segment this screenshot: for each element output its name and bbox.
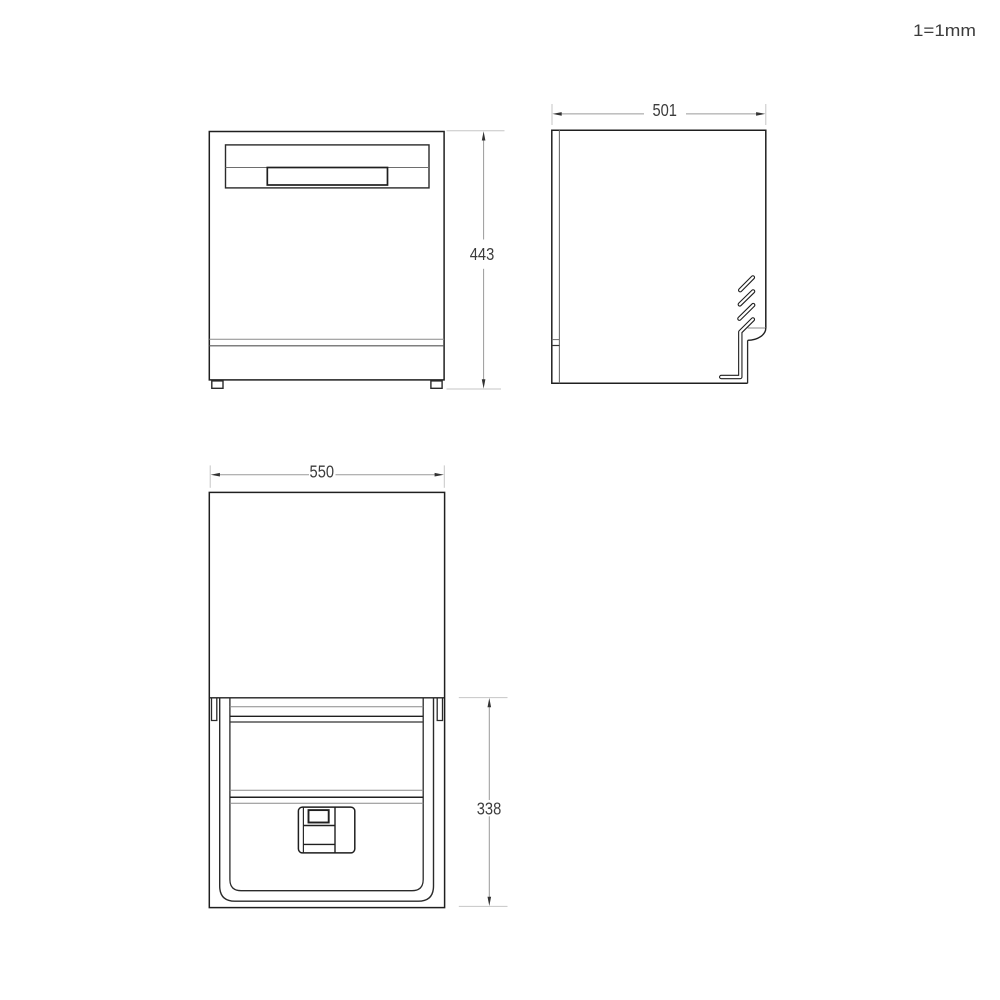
svg-text:550: 550 [310, 462, 335, 482]
svg-text:443: 443 [470, 244, 495, 264]
svg-text:501: 501 [652, 100, 677, 120]
svg-text:338: 338 [477, 798, 502, 818]
svg-text:1=1mm: 1=1mm [913, 22, 976, 40]
